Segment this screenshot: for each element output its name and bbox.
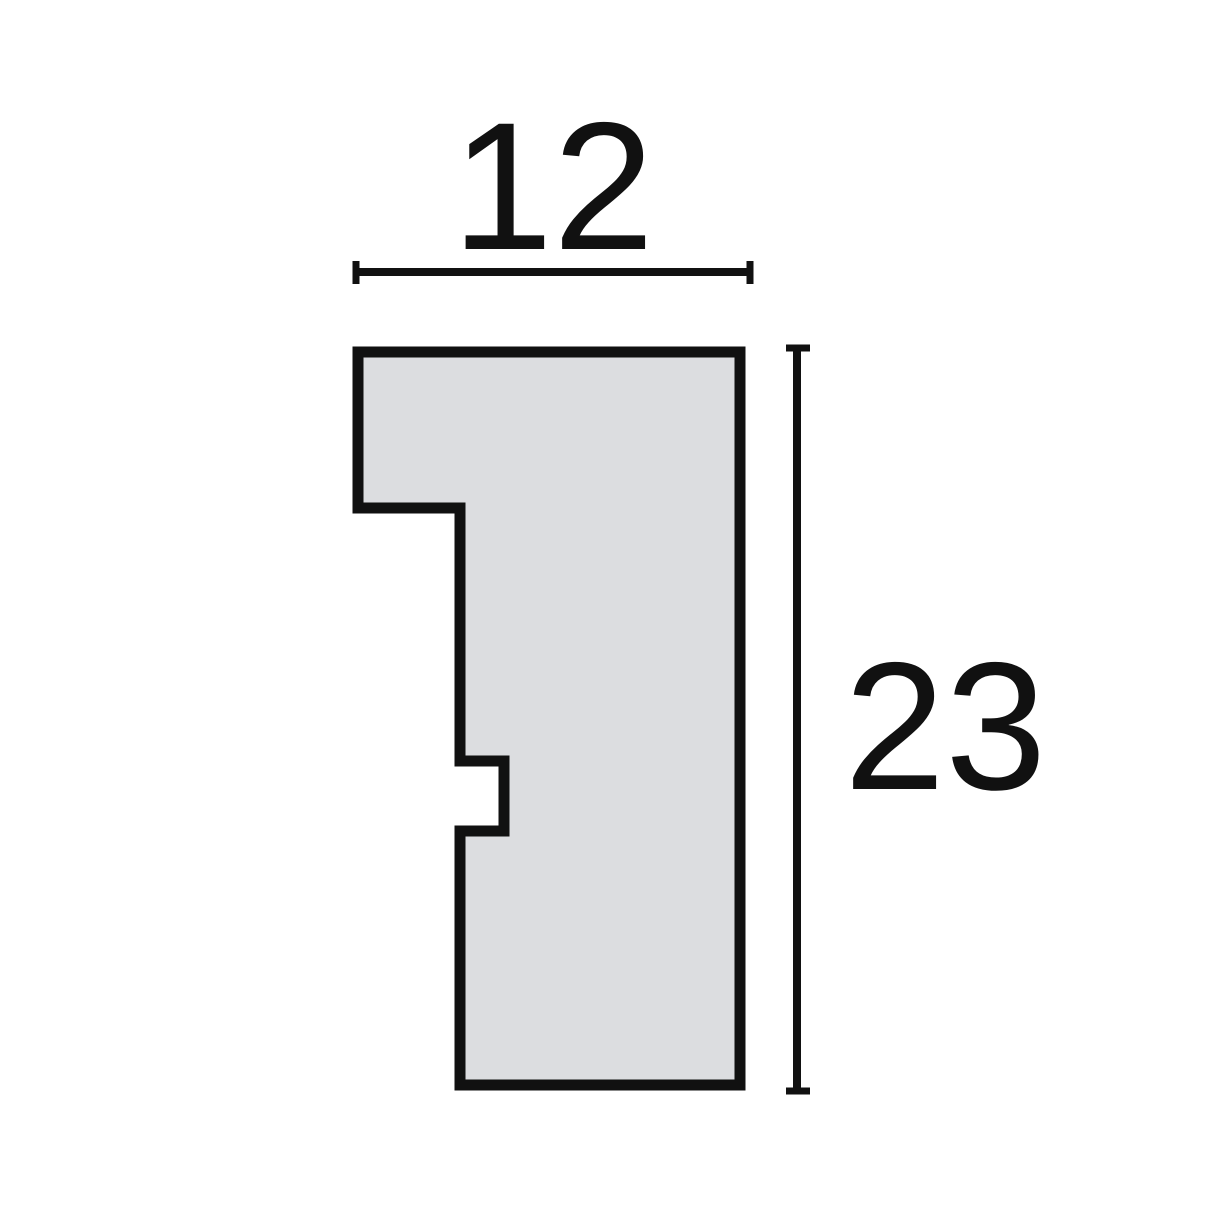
height-dimension: 23 (786, 348, 1046, 1091)
width-dimension: 12 (356, 84, 750, 288)
profile-drawing: 12 23 (0, 0, 1214, 1214)
diagram-canvas: 12 23 (0, 0, 1214, 1214)
profile-shape (358, 352, 740, 1085)
width-dimension-label: 12 (452, 84, 654, 288)
height-dimension-label: 23 (844, 624, 1046, 828)
